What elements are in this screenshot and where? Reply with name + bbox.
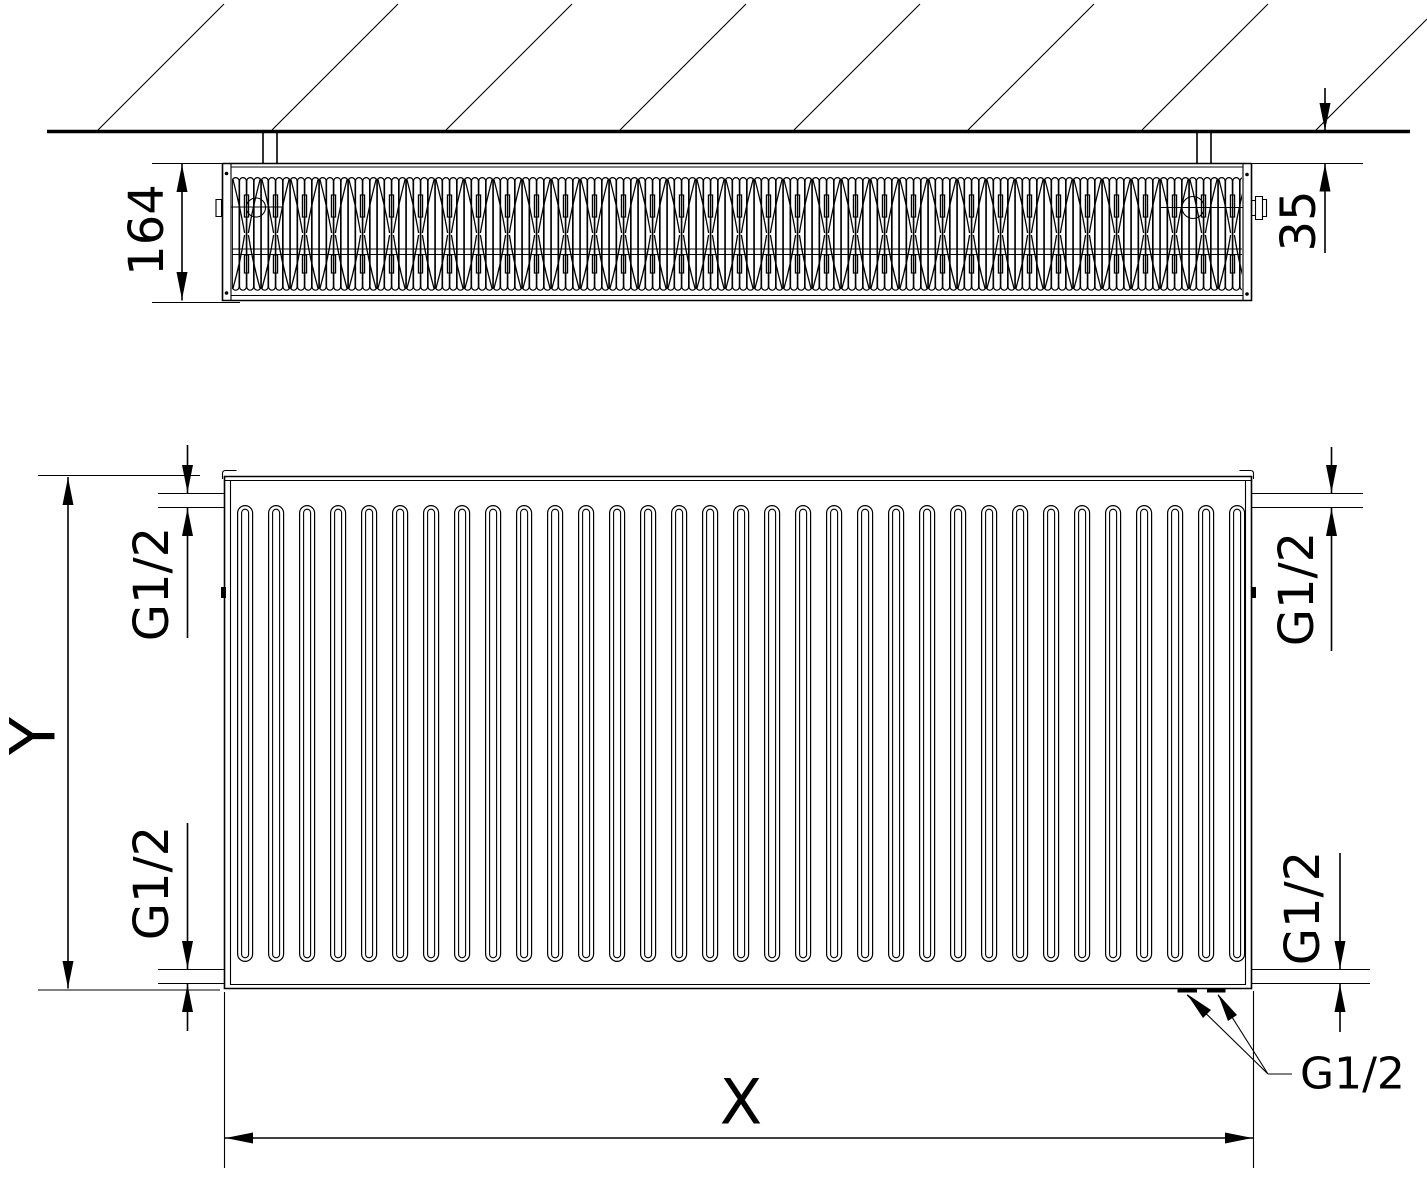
fin-pattern bbox=[232, 177, 1242, 291]
dimension-g12-top-right: G1/2 bbox=[1269, 447, 1337, 651]
leader-g12-bottom-ports: G1/2 bbox=[1187, 994, 1405, 1100]
dimension-wall-distance-35: 35 bbox=[1271, 88, 1331, 253]
g12-bottom-leader-label: G1/2 bbox=[1300, 1049, 1405, 1100]
wall-hatching bbox=[47, 4, 1427, 132]
bottom-port-left bbox=[1178, 988, 1198, 993]
mounting-brackets bbox=[263, 132, 1211, 164]
g12-top-left-label: G1/2 bbox=[124, 527, 180, 641]
wall-distance-dimension-label: 35 bbox=[1271, 190, 1327, 251]
depth-dimension-label: 164 bbox=[119, 184, 175, 276]
front-view: G1/2 G1/2 G1/2 G1/2 Y bbox=[0, 445, 1405, 1168]
dimension-width-x: X bbox=[225, 991, 1254, 1168]
radiator-section-body bbox=[152, 164, 1363, 301]
valve-stub bbox=[1252, 197, 1267, 220]
dimension-g12-bottom-left: G1/2 bbox=[124, 823, 193, 1031]
top-view: 164 35 bbox=[47, 4, 1427, 303]
radiator-front-body bbox=[221, 471, 1256, 993]
width-dimension-label: X bbox=[720, 1066, 762, 1139]
groove-pattern bbox=[237, 505, 1245, 962]
dimension-g12-bottom-right: G1/2 bbox=[1275, 851, 1346, 1032]
drawing-canvas: 164 35 bbox=[0, 0, 1427, 1179]
bottom-port-right bbox=[1207, 988, 1226, 993]
g12-top-right-label: G1/2 bbox=[1269, 532, 1325, 646]
dimension-g12-top-left: G1/2 bbox=[124, 445, 193, 641]
g12-bottom-left-label: G1/2 bbox=[124, 826, 180, 940]
radiator-technical-drawing: 164 35 bbox=[0, 0, 1427, 1179]
height-dimension-label: Y bbox=[0, 717, 70, 756]
g12-bottom-right-label: G1/2 bbox=[1275, 851, 1331, 965]
